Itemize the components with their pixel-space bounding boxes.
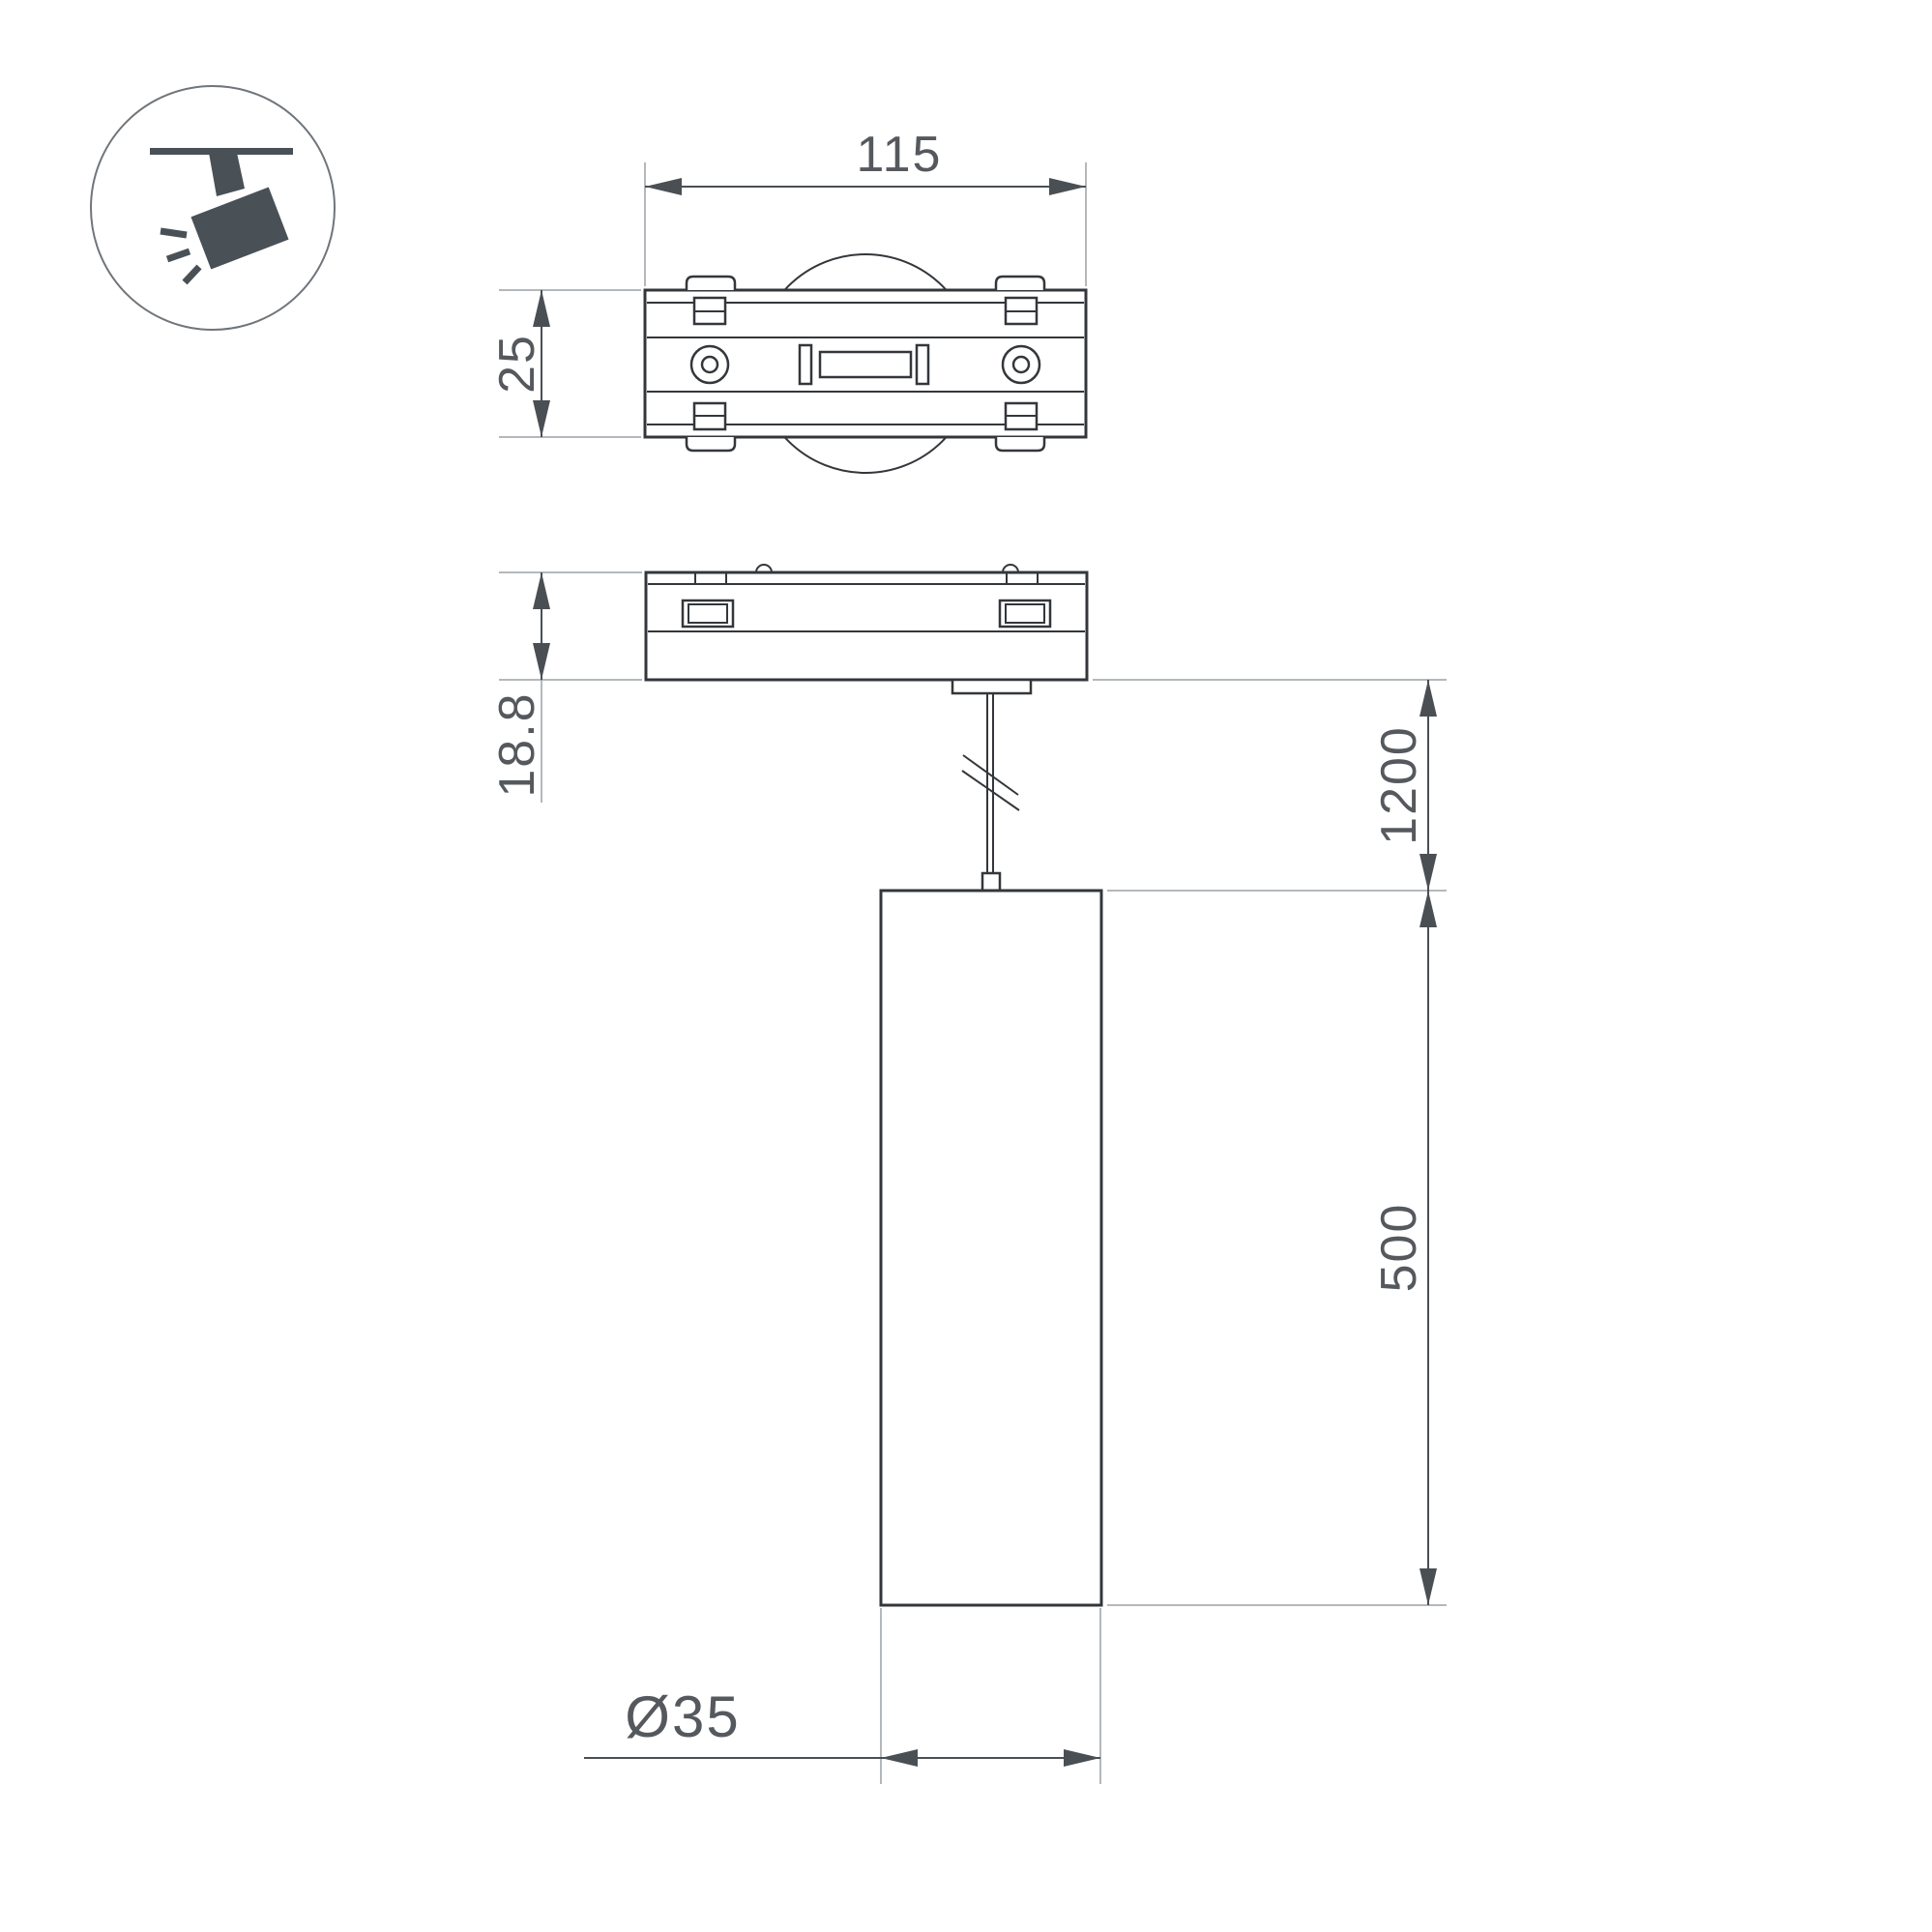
arrowhead-up (533, 290, 550, 327)
clip-tab (687, 277, 735, 290)
dimension-track-length: 115 (645, 127, 1086, 286)
arrowhead-left (881, 1749, 918, 1767)
dimension-suspension-length: 1200 (1093, 680, 1447, 891)
clip-tab (996, 437, 1044, 451)
arrowhead-up (1420, 891, 1437, 927)
contact-tab (917, 345, 928, 384)
dimension-lamp-diameter: Ø35 (584, 1608, 1100, 1784)
cable-break-mark (963, 755, 1018, 795)
dimension-label: 500 (1371, 1203, 1427, 1293)
arrowhead-down (533, 643, 550, 680)
clip-tab (996, 277, 1044, 290)
dimension-label: 18.8 (489, 691, 545, 797)
suspension-plate (952, 680, 1031, 693)
contact-connector (820, 352, 911, 377)
track-adapter-top-view (645, 254, 1086, 473)
cable-gripper (982, 873, 1000, 891)
icon-light-ray (161, 231, 187, 235)
icon-light-ray (185, 267, 199, 282)
arrowhead-right (1049, 178, 1086, 195)
dimension-label: 25 (489, 334, 545, 394)
icon-lamp-head (190, 188, 288, 270)
dimension-label: Ø35 (625, 1684, 740, 1749)
icon-circle-border (91, 86, 335, 330)
arrowhead-up (1420, 680, 1437, 717)
arrowhead-right (1064, 1749, 1100, 1767)
technical-drawing: 115 25 18.8 1200 500 (0, 0, 1932, 1932)
dimension-adapter-height: 18.8 (489, 572, 642, 803)
technical-drawing-page: 115 25 18.8 1200 500 (0, 0, 1932, 1932)
icon-light-ray (167, 251, 190, 259)
dimension-label: 115 (857, 127, 943, 183)
arrowhead-down (533, 400, 550, 437)
track-spotlight-icon (150, 148, 293, 282)
lamp-cylinder (881, 891, 1101, 1605)
track-adapter-side-view (646, 565, 1087, 680)
dimension-lamp-height: 500 (1107, 891, 1447, 1605)
pendant-assembly (881, 680, 1101, 1605)
clip-tab (687, 437, 735, 451)
arrowhead-left (645, 178, 682, 195)
arrowhead-up (533, 572, 550, 609)
product-type-icon (91, 86, 335, 330)
arrowhead-down (1420, 1568, 1437, 1605)
contact-tab (800, 345, 811, 384)
dimension-track-width: 25 (489, 290, 641, 437)
arrowhead-down (1420, 854, 1437, 891)
dimension-label: 1200 (1371, 725, 1427, 845)
icon-stem (209, 153, 245, 196)
